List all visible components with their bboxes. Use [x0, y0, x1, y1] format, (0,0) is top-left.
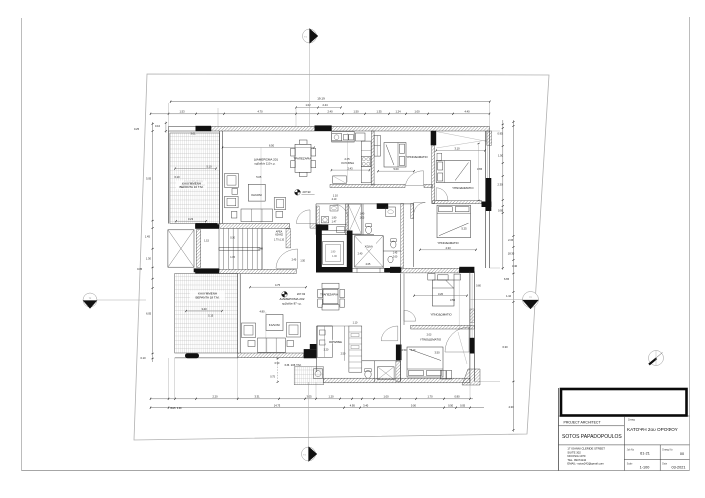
svg-text:0.10: 0.10 [140, 356, 146, 360]
svg-text:1.00: 1.00 [414, 110, 420, 114]
svg-text:1.35: 1.35 [376, 110, 382, 114]
svg-text:1.50: 1.50 [300, 259, 305, 262]
svg-text:4.80: 4.80 [259, 309, 265, 313]
svg-text:2.05: 2.05 [366, 263, 371, 266]
svg-text:0.80: 0.80 [454, 394, 460, 398]
svg-text:1.24: 1.24 [395, 110, 401, 114]
svg-text:3.50: 3.50 [434, 350, 440, 354]
svg-text:0.50: 0.50 [448, 403, 454, 407]
svg-text:5.15: 5.15 [208, 313, 214, 317]
svg-text:0.80: 0.80 [476, 285, 481, 288]
svg-text:03-2021: 03-2021 [672, 465, 686, 469]
svg-text:2.03: 2.03 [427, 334, 432, 337]
svg-text:2.60: 2.60 [393, 257, 398, 259]
svg-text:Scale: Scale [627, 464, 633, 466]
svg-text:6.10: 6.10 [174, 175, 180, 179]
svg-text:0.00: 0.00 [411, 403, 417, 407]
svg-text:εμβαδόν 87 τ.μ.: εμβαδόν 87 τ.μ. [282, 302, 302, 306]
svg-text:5.00: 5.00 [393, 167, 399, 171]
svg-text:3.01: 3.01 [190, 132, 196, 136]
svg-text:1.02: 1.02 [305, 103, 311, 107]
svg-text:3.65: 3.65 [477, 167, 483, 171]
svg-text:ΥΠΝΟΔΩΜΑΤΙΟ: ΥΠΝΟΔΩΜΑΤΙΟ [430, 313, 452, 317]
svg-text:2.40: 2.40 [327, 110, 333, 114]
svg-text:0.30: 0.30 [230, 237, 235, 240]
svg-text:1.00: 1.00 [383, 394, 389, 398]
svg-text:1.15: 1.15 [204, 239, 209, 242]
svg-text:4.95: 4.95 [350, 403, 356, 407]
svg-text:2.40: 2.40 [358, 252, 363, 255]
svg-text:1.50: 1.50 [498, 154, 504, 158]
svg-text:NICOSIA 1070: NICOSIA 1070 [567, 454, 586, 458]
svg-text:19.19: 19.19 [317, 97, 325, 101]
svg-text:0.90: 0.90 [275, 362, 280, 365]
svg-text:1.10: 1.10 [506, 294, 512, 298]
svg-text:3.40: 3.40 [363, 403, 369, 407]
svg-text:ΤΡΑΠΕΖΑΡΙΑ: ΤΡΑΠΕΖΑΡΙΑ [294, 156, 312, 160]
svg-text:5.05: 5.05 [146, 176, 152, 180]
svg-text:2.44: 2.44 [322, 103, 328, 107]
svg-text:18.30: 18.30 [508, 252, 515, 256]
svg-text:4.30: 4.30 [508, 405, 514, 409]
svg-text:61-21: 61-21 [640, 452, 650, 456]
svg-text:0.75: 0.75 [270, 375, 275, 378]
svg-text:0.25: 0.25 [134, 127, 140, 131]
svg-text:3.05: 3.05 [306, 394, 312, 398]
svg-text:1.70: 1.70 [427, 394, 433, 398]
svg-text:2.50: 2.50 [341, 352, 346, 355]
svg-text:4.33: 4.33 [445, 246, 451, 250]
svg-text:3.40: 3.40 [512, 264, 518, 268]
svg-text:ΥΠΝΟΔΩΜΑΤΙΟ: ΥΠΝΟΔΩΜΑΤΙΟ [452, 186, 474, 190]
svg-text:6.50: 6.50 [269, 144, 275, 148]
svg-text:ΚΟΥΖΙΝΑ: ΚΟΥΖΙΝΑ [342, 161, 355, 165]
svg-text:6.65: 6.65 [504, 277, 510, 281]
svg-text:ΥΠΝΟΔΩΜΑΤΙΟ: ΥΠΝΟΔΩΜΑΤΙΟ [420, 337, 442, 341]
svg-text:1.47: 1.47 [332, 220, 337, 223]
svg-text:SUITE 302: SUITE 302 [567, 450, 581, 454]
svg-text:0.10: 0.10 [155, 124, 161, 128]
svg-text:2.15: 2.15 [508, 238, 514, 242]
svg-text:1.80: 1.80 [332, 217, 337, 220]
svg-text:1.40: 1.40 [360, 214, 365, 216]
svg-text:PROJECT ARCHITECT: PROJECT ARCHITECT [564, 420, 602, 424]
svg-text:6.05: 6.05 [146, 312, 152, 316]
svg-text:00: 00 [680, 452, 684, 456]
svg-text:ΔΙΑΜΕΡΙΣΜΑ 202: ΔΙΑΜΕΡΙΣΜΑ 202 [280, 297, 305, 301]
svg-text:3.55: 3.55 [450, 298, 456, 302]
svg-text:2.50: 2.50 [402, 349, 407, 352]
svg-text:2.40: 2.40 [258, 248, 263, 251]
svg-text:5.10: 5.10 [206, 165, 212, 169]
svg-text:Drawg No: Drawg No [662, 448, 673, 451]
svg-text:1.30: 1.30 [146, 257, 152, 261]
svg-text:ΚΟΥΖΙΝΑ: ΚΟΥΖΙΝΑ [329, 340, 342, 344]
svg-text:Job No: Job No [627, 449, 635, 451]
svg-text:3.20: 3.20 [438, 292, 444, 296]
svg-text:3.43: 3.43 [201, 307, 207, 311]
svg-text:2.43: 2.43 [347, 166, 353, 170]
svg-text:4.70: 4.70 [257, 110, 263, 114]
svg-text:TEL. 99474142: TEL. 99474142 [567, 458, 586, 462]
svg-text:EMAIL- sotos242@gmail.com: EMAIL- sotos242@gmail.com [567, 462, 604, 466]
svg-text:3.20: 3.20 [324, 349, 329, 352]
svg-text:4.10: 4.10 [332, 198, 337, 201]
svg-text:207.93: 207.93 [303, 190, 311, 194]
svg-text:ΒΕΡΑΝΤΑ 18 Τ.Μ.: ΒΕΡΑΝΤΑ 18 Τ.Μ. [195, 295, 219, 299]
svg-text:6.30: 6.30 [502, 345, 508, 349]
svg-text:ΧΩΛΛ: ΧΩΛΛ [365, 244, 373, 248]
svg-text:εμβαδόν 110 τ.μ.: εμβαδόν 110 τ.μ. [255, 161, 276, 165]
svg-text:2.20: 2.20 [212, 394, 218, 398]
svg-text:1-100: 1-100 [640, 465, 650, 469]
svg-text:0.95: 0.95 [497, 131, 503, 135]
svg-text:ΣΑΛΟΝΙ: ΣΑΛΟΝΙ [251, 193, 262, 197]
svg-text:1.10: 1.10 [333, 194, 339, 198]
svg-text:0.05: 0.05 [460, 403, 466, 407]
svg-text:1.80: 1.80 [331, 250, 336, 253]
svg-text:1.10: 1.10 [353, 321, 358, 324]
svg-text:2.30: 2.30 [497, 182, 503, 186]
svg-text:1.15: 1.15 [230, 256, 235, 259]
svg-text:5.25: 5.25 [461, 226, 467, 230]
svg-text:17 IOANNI CLERIDE STREET: 17 IOANNI CLERIDE STREET [567, 447, 605, 451]
svg-text:1.50: 1.50 [353, 110, 359, 114]
svg-text:ΒΕΡΑΝΤΑ 16 Τ.Μ.: ΒΕΡΑΝΤΑ 16 Τ.Μ. [179, 185, 203, 189]
svg-text:Drawg: Drawg [628, 419, 636, 422]
svg-text:Date: Date [662, 463, 668, 466]
svg-text:ΚΑΤΟΨΗ 2ου ΟΡΟΦΟΥ: ΚΑΤΟΨΗ 2ου ΟΡΟΦΟΥ [627, 427, 679, 432]
svg-text:ΒΑΘ. 0.00: ΒΑΘ. 0.00 [171, 407, 183, 410]
svg-text:1.45: 1.45 [393, 253, 398, 255]
svg-text:3.10: 3.10 [454, 146, 460, 150]
svg-text:0.05: 0.05 [137, 267, 143, 271]
svg-text:14.73: 14.73 [274, 403, 281, 407]
svg-text:4.40: 4.40 [464, 110, 470, 114]
svg-text:1.77x1.10: 1.77x1.10 [274, 239, 285, 241]
svg-text:207.93: 207.93 [297, 292, 306, 296]
svg-text:Κ.Β. 106 Τ.Μ.: Κ.Β. 106 Τ.Μ. [285, 363, 302, 367]
svg-text:3.31: 3.31 [254, 394, 260, 398]
svg-text:1.45: 1.45 [145, 234, 151, 238]
svg-text:ΑΣΑΝΣ: ΑΣΑΝΣ [275, 233, 283, 236]
svg-text:4.75: 4.75 [275, 283, 281, 287]
svg-text:1.53: 1.53 [179, 110, 185, 114]
svg-text:2.05: 2.05 [360, 217, 365, 219]
svg-text:3.23: 3.23 [188, 217, 194, 221]
svg-text:1.20: 1.20 [328, 394, 334, 398]
svg-text:0.95: 0.95 [498, 209, 504, 213]
svg-text:ΥΠΝΟΔΩΜΑΤΙΟ: ΥΠΝΟΔΩΜΑΤΙΟ [406, 155, 428, 159]
svg-text:ΣΑΛΟΝΙ: ΣΑΛΟΝΙ [269, 323, 280, 327]
svg-text:ΥΠΝΟΔΩΜΑΤΙΟ: ΥΠΝΟΔΩΜΑΤΙΟ [437, 241, 459, 245]
svg-text:SOTOS PAPADOPOULOS: SOTOS PAPADOPOULOS [562, 434, 622, 440]
svg-text:2.40: 2.40 [292, 259, 297, 262]
svg-text:1.00: 1.00 [332, 255, 337, 258]
